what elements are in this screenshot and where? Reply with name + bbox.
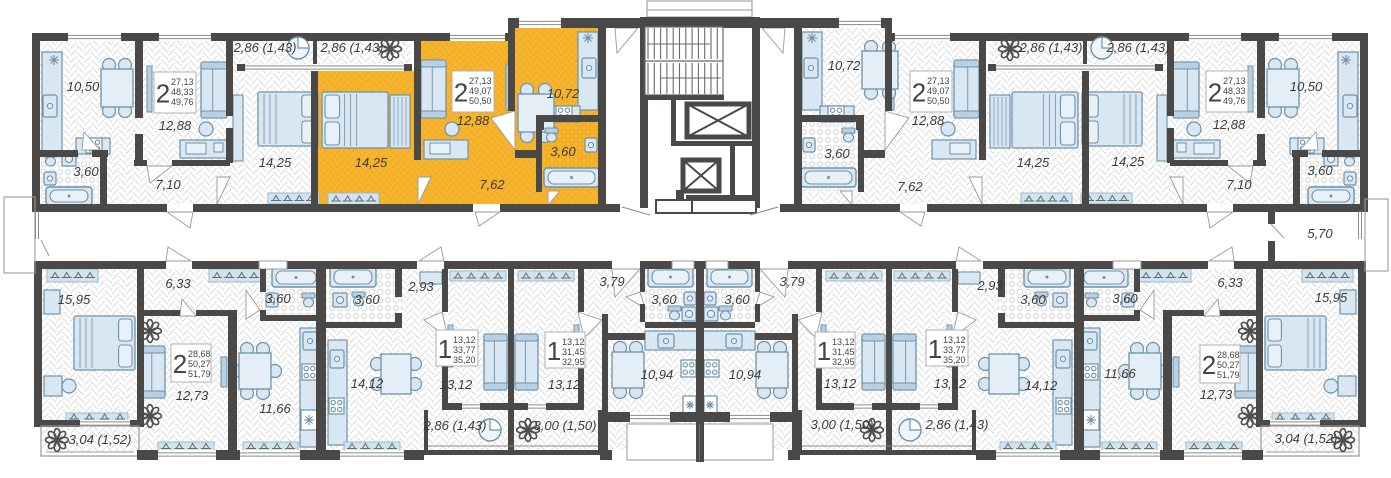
svg-text:35,20: 35,20 (453, 355, 476, 365)
svg-text:50,27: 50,27 (188, 359, 211, 369)
svg-text:2: 2 (156, 79, 170, 109)
svg-text:3,04 (1,52): 3,04 (1,52) (1275, 431, 1338, 446)
svg-text:2,93: 2,93 (407, 279, 434, 294)
svg-text:3,79: 3,79 (599, 274, 624, 289)
svg-text:3,60: 3,60 (651, 292, 677, 307)
svg-text:49,76: 49,76 (171, 97, 194, 107)
svg-text:13,12: 13,12 (832, 337, 855, 347)
svg-text:31,45: 31,45 (562, 347, 585, 357)
svg-text:3,60: 3,60 (724, 292, 750, 307)
svg-text:12,88: 12,88 (912, 113, 945, 128)
svg-text:12,88: 12,88 (159, 118, 192, 133)
svg-text:6,33: 6,33 (165, 276, 191, 291)
svg-text:3,60: 3,60 (824, 146, 850, 161)
svg-text:2,86 (1,43): 2,86 (1,43) (1019, 40, 1083, 55)
svg-text:31,45: 31,45 (832, 347, 855, 357)
svg-text:2,93: 2,93 (976, 278, 1003, 293)
svg-text:2: 2 (454, 78, 468, 108)
svg-text:10,72: 10,72 (828, 58, 861, 73)
svg-text:3,04 (1,52): 3,04 (1,52) (69, 432, 132, 447)
svg-text:14,12: 14,12 (1025, 378, 1058, 393)
svg-text:49,76: 49,76 (1223, 96, 1246, 106)
svg-text:7,62: 7,62 (897, 179, 923, 194)
svg-text:10,94: 10,94 (729, 367, 762, 382)
svg-text:2: 2 (1208, 78, 1222, 108)
svg-text:3,79: 3,79 (779, 274, 804, 289)
svg-text:13,12: 13,12 (440, 377, 473, 392)
svg-text:3,60: 3,60 (550, 144, 576, 159)
svg-text:27,13: 27,13 (171, 77, 194, 87)
svg-text:1: 1 (928, 334, 942, 364)
svg-text:3,60: 3,60 (265, 291, 291, 306)
svg-text:27,13: 27,13 (927, 76, 950, 86)
svg-text:50,27: 50,27 (1217, 360, 1240, 370)
svg-text:32,95: 32,95 (832, 357, 855, 367)
svg-text:13,12: 13,12 (943, 335, 966, 345)
svg-text:12,73: 12,73 (1200, 387, 1233, 402)
svg-text:2,86 (1,43): 2,86 (1,43) (1106, 40, 1170, 55)
svg-text:3,60: 3,60 (73, 164, 99, 179)
svg-text:11,66: 11,66 (259, 401, 291, 416)
svg-text:13,12: 13,12 (548, 377, 581, 392)
svg-text:15,95: 15,95 (1315, 290, 1348, 305)
svg-text:28,68: 28,68 (188, 349, 211, 359)
svg-text:2,86 (1,43): 2,86 (1,43) (320, 40, 384, 55)
svg-text:15,95: 15,95 (58, 292, 91, 307)
svg-text:12,73: 12,73 (176, 388, 209, 403)
svg-text:7,10: 7,10 (1226, 177, 1252, 192)
svg-text:33,77: 33,77 (943, 345, 966, 355)
svg-text:32,95: 32,95 (562, 357, 585, 367)
svg-text:51,79: 51,79 (1217, 370, 1240, 380)
svg-text:48,33: 48,33 (171, 87, 194, 97)
svg-text:27,13: 27,13 (469, 76, 492, 86)
svg-text:3,00 (1,50): 3,00 (1,50) (811, 417, 874, 432)
svg-text:2,86 (1,43): 2,86 (1,43) (233, 40, 297, 55)
svg-text:10,94: 10,94 (641, 367, 674, 382)
svg-text:7,10: 7,10 (155, 177, 181, 192)
svg-text:3,60: 3,60 (1307, 163, 1333, 178)
svg-text:1: 1 (817, 336, 831, 366)
svg-text:33,77: 33,77 (453, 345, 476, 355)
svg-text:2: 2 (1202, 350, 1216, 380)
svg-text:11,66: 11,66 (1104, 366, 1136, 381)
svg-text:5,70: 5,70 (1307, 226, 1333, 241)
svg-text:50,50: 50,50 (469, 96, 492, 106)
svg-text:3,00 (1,50): 3,00 (1,50) (534, 418, 597, 433)
svg-text:3,60: 3,60 (1112, 291, 1138, 306)
svg-text:2: 2 (173, 349, 187, 379)
svg-text:2: 2 (912, 78, 926, 108)
svg-text:3,60: 3,60 (354, 292, 380, 307)
svg-text:6,33: 6,33 (1217, 275, 1243, 290)
svg-text:1: 1 (438, 334, 452, 364)
svg-text:14,25: 14,25 (1112, 154, 1145, 169)
svg-text:10,50: 10,50 (1290, 79, 1323, 94)
svg-text:13,12: 13,12 (562, 337, 585, 347)
svg-text:49,07: 49,07 (927, 86, 950, 96)
svg-text:14,25: 14,25 (355, 155, 388, 170)
svg-text:14,25: 14,25 (259, 155, 292, 170)
svg-text:1: 1 (547, 336, 561, 366)
svg-text:12,88: 12,88 (457, 113, 490, 128)
svg-text:7,62: 7,62 (479, 177, 505, 192)
svg-text:2,86 (1,43): 2,86 (1,43) (423, 418, 487, 433)
svg-text:14,12: 14,12 (351, 376, 384, 391)
svg-text:48,33: 48,33 (1223, 86, 1246, 96)
svg-text:13,12: 13,12 (934, 376, 967, 391)
svg-text:3,60: 3,60 (1020, 292, 1046, 307)
svg-text:2,86 (1,43): 2,86 (1,43) (925, 417, 989, 432)
svg-text:51,79: 51,79 (188, 369, 211, 379)
svg-text:35,20: 35,20 (943, 355, 966, 365)
svg-text:13,12: 13,12 (824, 376, 857, 391)
svg-text:27,13: 27,13 (1223, 76, 1246, 86)
svg-text:14,25: 14,25 (1017, 155, 1050, 170)
svg-text:49,07: 49,07 (469, 86, 492, 96)
svg-text:12,88: 12,88 (1213, 117, 1246, 132)
svg-text:10,50: 10,50 (67, 79, 100, 94)
svg-text:13,12: 13,12 (453, 335, 476, 345)
svg-text:28,68: 28,68 (1217, 350, 1240, 360)
svg-text:50,50: 50,50 (927, 96, 950, 106)
svg-text:10,72: 10,72 (547, 86, 580, 101)
